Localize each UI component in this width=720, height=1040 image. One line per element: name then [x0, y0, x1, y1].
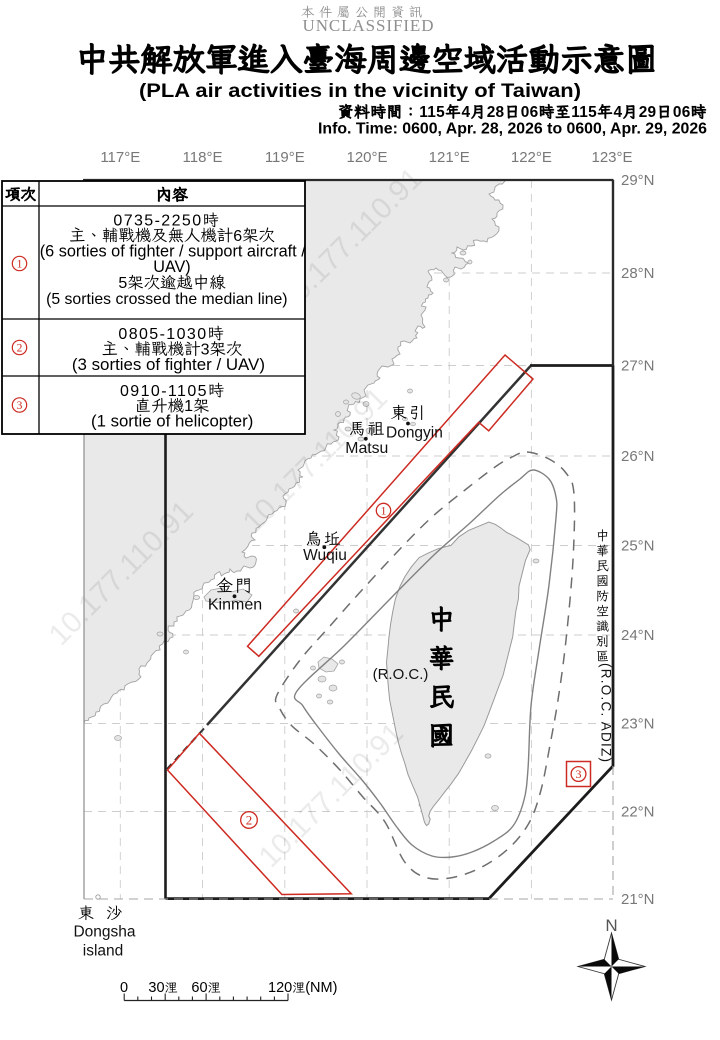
- svg-text:28: 28: [487, 104, 505, 121]
- svg-text:UNCLASSIFIED: UNCLASSIFIED: [303, 16, 434, 35]
- svg-text:4: 4: [614, 104, 623, 121]
- svg-text:island: island: [83, 943, 124, 960]
- svg-text:29: 29: [639, 104, 657, 121]
- svg-text:123°E: 123°E: [591, 149, 632, 166]
- svg-text:60: 60: [191, 980, 207, 996]
- svg-text:21°N: 21°N: [621, 891, 655, 908]
- svg-text:0735-2250: 0735-2250: [113, 213, 202, 230]
- svg-text:26°N: 26°N: [621, 448, 655, 465]
- svg-text:120: 120: [268, 980, 292, 996]
- svg-text:27°N: 27°N: [621, 358, 655, 375]
- svg-text:Dongsha: Dongsha: [73, 924, 135, 941]
- svg-text:1: 1: [17, 258, 23, 270]
- svg-text:(R.O.C. ADIZ): (R.O.C. ADIZ): [599, 663, 614, 762]
- svg-text:24°N: 24°N: [621, 627, 655, 644]
- svg-text:122°E: 122°E: [511, 149, 552, 166]
- svg-text:25°N: 25°N: [621, 538, 655, 555]
- svg-text:0: 0: [120, 980, 128, 996]
- svg-text:1: 1: [381, 504, 387, 518]
- svg-text:121°E: 121°E: [429, 149, 470, 166]
- svg-text:(5 sorties crossed the median: (5 sorties crossed the median line): [46, 291, 287, 308]
- svg-text:4: 4: [462, 104, 471, 121]
- svg-text:Info. Time: 0600, Apr. 28, 202: Info. Time: 0600, Apr. 28, 2026 to 0600,…: [318, 121, 707, 138]
- svg-text:(1 sortie of helicopter): (1 sortie of helicopter): [91, 411, 253, 430]
- svg-text:29°N: 29°N: [621, 172, 655, 189]
- svg-text:(PLA air activities in the vic: (PLA air activities in the vicinity of T…: [139, 80, 581, 102]
- svg-text:28°N: 28°N: [621, 265, 655, 282]
- svg-text:118°E: 118°E: [183, 149, 223, 166]
- svg-text:115: 115: [571, 104, 597, 121]
- svg-text:2: 2: [17, 342, 23, 354]
- svg-text:(3 sorties of fighter / UAV): (3 sorties of fighter / UAV): [72, 355, 265, 374]
- svg-text:Matsu: Matsu: [345, 440, 388, 457]
- svg-text:30: 30: [148, 980, 164, 996]
- svg-text:0910-1105: 0910-1105: [120, 383, 208, 400]
- svg-text:Wuqiu: Wuqiu: [303, 547, 347, 564]
- svg-text:119°E: 119°E: [265, 149, 305, 166]
- svg-text:(NM): (NM): [305, 980, 337, 996]
- svg-text:Dongyin: Dongyin: [386, 425, 443, 442]
- svg-text:(R.O.C.): (R.O.C.): [373, 666, 429, 683]
- svg-text:117°E: 117°E: [100, 149, 140, 166]
- svg-text:115: 115: [419, 104, 445, 121]
- svg-text:22°N: 22°N: [621, 804, 655, 821]
- svg-text:UAV): UAV): [153, 258, 190, 276]
- svg-text:23°N: 23°N: [621, 716, 655, 733]
- svg-text:3: 3: [17, 400, 23, 412]
- svg-text:06: 06: [673, 104, 691, 121]
- svg-text:0805-1030: 0805-1030: [118, 326, 207, 343]
- svg-text:5: 5: [118, 275, 127, 292]
- svg-text:2: 2: [246, 812, 253, 827]
- svg-text:120°E: 120°E: [346, 149, 387, 166]
- svg-text:06: 06: [521, 104, 539, 121]
- svg-text:3: 3: [576, 767, 582, 781]
- svg-text:Kinmen: Kinmen: [208, 596, 262, 613]
